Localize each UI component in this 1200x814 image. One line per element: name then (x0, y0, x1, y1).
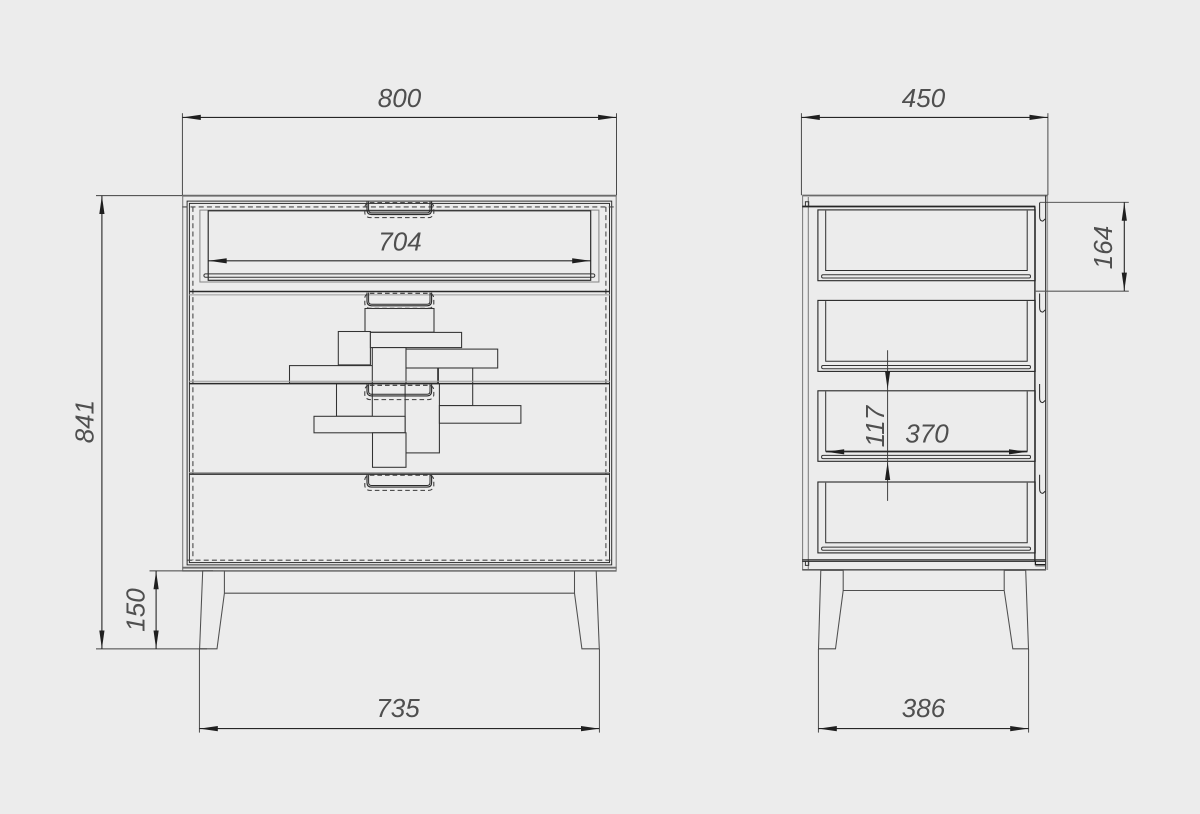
svg-text:150: 150 (121, 588, 151, 632)
svg-text:841: 841 (70, 400, 100, 443)
svg-text:800: 800 (378, 83, 422, 113)
svg-text:117: 117 (860, 404, 890, 447)
svg-text:164: 164 (1088, 226, 1118, 269)
svg-text:450: 450 (902, 83, 946, 113)
svg-text:386: 386 (902, 693, 946, 723)
svg-text:704: 704 (378, 226, 421, 256)
svg-text:735: 735 (376, 693, 420, 723)
svg-text:370: 370 (905, 418, 949, 448)
